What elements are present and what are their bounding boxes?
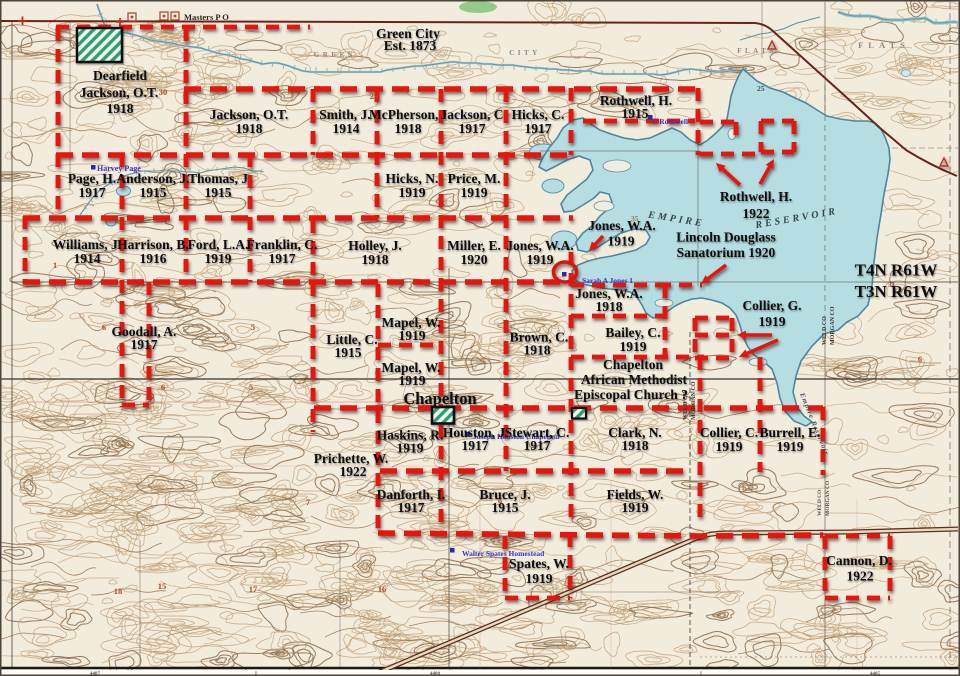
svg-text:Cannon, D.: Cannon, D. (826, 553, 892, 568)
svg-text:1919: 1919 (205, 251, 232, 266)
svg-text:1917: 1917 (525, 121, 552, 136)
svg-text:T3N R61W: T3N R61W (855, 282, 938, 301)
svg-text:1919: 1919 (526, 571, 553, 586)
svg-text:1920: 1920 (461, 252, 488, 267)
svg-text:1915: 1915 (140, 185, 167, 200)
svg-text:6: 6 (918, 354, 922, 364)
svg-text:1917: 1917 (524, 438, 551, 453)
svg-text:1916: 1916 (140, 251, 167, 266)
svg-text:Anderson, J.: Anderson, J. (116, 171, 189, 186)
svg-text:Episcopal Church ?: Episcopal Church ? (574, 387, 688, 402)
svg-text:FLATS: FLATS (858, 40, 910, 50)
svg-text:1915: 1915 (622, 106, 649, 121)
svg-text:30: 30 (159, 87, 168, 97)
svg-text:Jackson, C: Jackson, C (440, 107, 503, 122)
svg-text:Bailey, C.: Bailey, C. (605, 325, 660, 340)
svg-text:Franklin, C.: Franklin, C. (247, 237, 318, 252)
svg-text:Est. 1873: Est. 1873 (384, 38, 437, 53)
svg-text:1919: 1919 (527, 252, 554, 267)
svg-text:1915: 1915 (492, 500, 519, 515)
svg-text:CITY: CITY (509, 49, 541, 57)
svg-text:1918: 1918 (524, 343, 551, 358)
svg-text:Hicks, C.: Hicks, C. (512, 107, 565, 122)
svg-text:T4N R61W: T4N R61W (855, 261, 938, 280)
svg-text:6: 6 (102, 322, 106, 332)
svg-text:C Rothwell: C Rothwell (652, 117, 688, 126)
svg-text:1919: 1919 (399, 373, 426, 388)
svg-text:Page, H.: Page, H. (68, 171, 116, 186)
svg-text:18: 18 (114, 586, 123, 596)
svg-text:Thomas, J: Thomas, J (188, 171, 248, 186)
svg-text:1919: 1919 (622, 500, 649, 515)
svg-text:15: 15 (158, 581, 167, 591)
svg-text:Williams, J.: Williams, J. (53, 237, 121, 252)
svg-text:Jones, W.A.: Jones, W.A. (588, 218, 656, 233)
svg-text:African Methodist: African Methodist (581, 372, 688, 387)
svg-text:1918: 1918 (362, 252, 389, 267)
svg-text:1919: 1919 (399, 185, 426, 200)
svg-text:1919: 1919 (759, 314, 786, 329)
svg-text:Spates, W.: Spates, W. (509, 556, 569, 571)
svg-text:Harrison, B.: Harrison, B. (117, 237, 189, 252)
svg-text:FLATS: FLATS (737, 47, 777, 55)
svg-text:1915: 1915 (335, 345, 362, 360)
svg-text:Dearfield: Dearfield (93, 68, 147, 83)
svg-text:1919: 1919 (461, 185, 488, 200)
svg-text:1: 1 (53, 260, 57, 270)
svg-text:Miller, E.: Miller, E. (447, 238, 501, 253)
svg-text:1917: 1917 (269, 251, 296, 266)
svg-text:MORGAN CO: MORGAN CO (691, 381, 697, 420)
svg-text:MORGAN CO: MORGAN CO (830, 306, 836, 345)
svg-text:1914: 1914 (333, 121, 360, 136)
svg-text:Holley, J.: Holley, J. (348, 238, 402, 253)
svg-text:1915: 1915 (205, 185, 232, 200)
svg-text:1917: 1917 (398, 500, 425, 515)
svg-text:McPherson, I: McPherson, I (369, 107, 447, 122)
svg-text:1919: 1919 (620, 339, 647, 354)
svg-text:1918: 1918 (596, 299, 623, 314)
svg-text:Jackson, O.T.: Jackson, O.T. (80, 85, 159, 100)
svg-text:Burrell, E.: Burrell, E. (760, 425, 821, 440)
svg-text:Lincoln Douglass: Lincoln Douglass (676, 230, 775, 245)
svg-text:Jackson, O.T.: Jackson, O.T. (210, 107, 289, 122)
svg-text:29: 29 (370, 91, 379, 101)
svg-text:1919: 1919 (399, 328, 426, 343)
svg-text:6: 6 (161, 382, 165, 392)
svg-text:WELD CO: WELD CO (822, 316, 828, 345)
svg-text:1918: 1918 (622, 438, 649, 453)
svg-text:GREEN: GREEN (314, 51, 356, 59)
svg-text:1917: 1917 (79, 185, 106, 200)
svg-text:Sarah A Jones 1: Sarah A Jones 1 (582, 276, 633, 285)
svg-text:5: 5 (249, 382, 253, 392)
svg-text:1917: 1917 (131, 337, 158, 352)
svg-text:17: 17 (249, 584, 258, 594)
svg-text:Sanatorium 1920: Sanatorium 1920 (677, 245, 776, 260)
svg-text:Rothwell, H.: Rothwell, H. (720, 189, 792, 204)
svg-text:1919: 1919 (777, 439, 804, 454)
svg-text:1919: 1919 (608, 234, 635, 249)
svg-text:Ford, L.A.: Ford, L.A. (188, 237, 249, 252)
svg-text:Chapelton: Chapelton (403, 389, 476, 408)
svg-text:Masters P O: Masters P O (184, 12, 229, 22)
svg-text:25: 25 (757, 84, 765, 93)
svg-text:1918: 1918 (395, 121, 422, 136)
svg-text:Hicks, N.: Hicks, N. (386, 171, 439, 186)
svg-text:1918: 1918 (236, 121, 263, 136)
svg-text:16: 16 (378, 584, 387, 594)
svg-text:5: 5 (251, 322, 255, 332)
svg-text:Jones, W.A.: Jones, W.A. (506, 238, 574, 253)
svg-text:1922: 1922 (743, 206, 770, 221)
svg-text:MORGAN CO: MORGAN CO (825, 480, 831, 516)
svg-text:Chapelton: Chapelton (603, 357, 664, 372)
svg-text:1914: 1914 (74, 251, 101, 266)
svg-text:Collier, C.: Collier, C. (700, 425, 758, 440)
svg-text:1922: 1922 (340, 464, 367, 479)
svg-text:Smith, J.: Smith, J. (319, 107, 370, 122)
svg-text:WELD CO: WELD CO (817, 489, 823, 516)
svg-text:1919: 1919 (716, 439, 743, 454)
svg-text:1922: 1922 (847, 569, 874, 584)
svg-text:Price, M.: Price, M. (448, 171, 501, 186)
svg-text:1917: 1917 (462, 438, 489, 453)
svg-text:Collier, G.: Collier, G. (742, 298, 801, 313)
svg-text:1918: 1918 (107, 101, 134, 116)
svg-text:1919: 1919 (397, 441, 424, 456)
svg-text:1917: 1917 (459, 121, 486, 136)
